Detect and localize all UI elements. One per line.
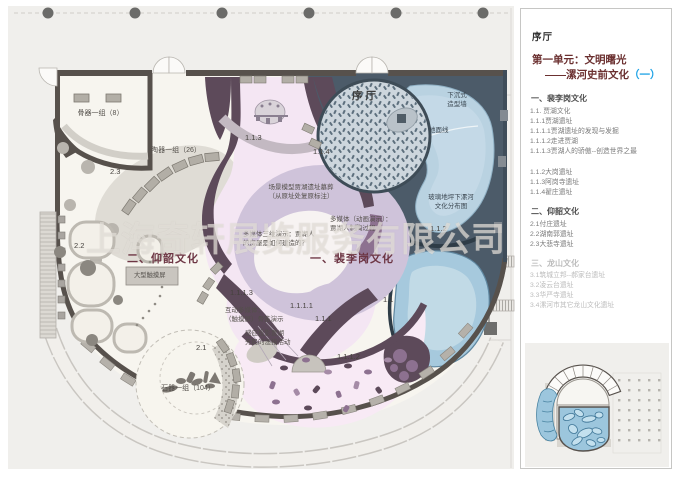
panel-item: 3.2凌云台遗址 (530, 279, 573, 289)
label-media-3d: 多媒体三维演示：贾湖人 的房屋是如何建造的？ (243, 230, 315, 248)
panel-item: 1.1.3阿岗寺遗址 (530, 176, 579, 186)
label-bone-group: 骨器一组（8） (58, 109, 143, 119)
exhibition-plan-page: 骨器一组（8） 陶器一组（26） 2.3 2.2 二、仰韶文化 大型触摸屏 2.… (0, 0, 676, 477)
minimap-thumbnail (525, 343, 669, 467)
panel-unit-title: 第一单元：文明曙光 (532, 52, 627, 67)
label-zone-1-1: 1.1 (383, 295, 393, 306)
label-sensor-projection: 感应投影贾湖 先民的渔猎活动 (245, 329, 291, 347)
panel-item: 3.1筑城立邦--郝家台遗址 (530, 269, 605, 279)
label-zone-1-1-2: 1.1.2 (430, 224, 447, 235)
label-zone-1-1-4: 1.1.4 (313, 147, 330, 158)
panel-unit-subtitle-mark: （一） (629, 69, 661, 81)
label-zone-1-1-1: 1.1.1 (315, 314, 332, 325)
label-ground-line: 地面线 (429, 126, 449, 135)
label-touch-screen: 大型触摸屏 (134, 272, 165, 281)
panel-item: 1.1.1贾湖遗址 (530, 115, 572, 125)
panel-item: 2.2湖南郭遗址 (530, 228, 573, 238)
label-zone-2-1: 2.1 (196, 343, 206, 354)
panel-item: 2.3大悲寺遗址 (530, 238, 573, 248)
label-media-anim: 多媒体（动画演示）： 贾湖人制陶过程 (330, 215, 392, 233)
panel-item: 1.1.1.2走进贾湖 (530, 135, 578, 145)
label-yangshao-title: 二、仰韶文化 (115, 250, 211, 266)
label-zone-2-3: 2.3 (110, 167, 120, 178)
panel-item: 1.1.4翟庄遗址 (530, 186, 572, 196)
label-glass-floor: 玻璃地坪下漯河 文化分布图 (423, 193, 479, 211)
label-pottery-group: 陶器一组（26） (130, 146, 222, 156)
label-peiligang-title: 一、裴李岗文化 (300, 250, 404, 266)
panel-item: 3.4漯河市其它龙山文化遗址 (530, 299, 614, 309)
panel-unit-subtitle-text: ——漯河史前文化 (545, 69, 629, 81)
panel-section-title: 一、裴李岗文化 (531, 93, 587, 104)
label-zone-2-2: 2.2 (74, 241, 84, 252)
label-zone-1-1-1-1: 1.1.1.1 (290, 301, 313, 312)
label-scene-model: 场景模型贾湖遗址墓葬 （从原址处复原标注） (254, 183, 348, 201)
panel-section-title: 二、仰韶文化 (531, 206, 579, 217)
panel-item: 1.1.1.1贾湖遗址的发现与发掘 (530, 125, 619, 135)
panel-lobby-title: 序厅 (532, 29, 553, 43)
panel-item: 1.1.1.3贾湖人的骄傲--创造世界之最 (530, 145, 637, 155)
legend-panel: 序厅 第一单元：文明曙光 ——漯河史前文化（一） 一、裴李岗文化 1.1. 贾湖… (520, 8, 672, 469)
label-plan-lobby: 序厅 (352, 88, 379, 103)
panel-item: 1.1.2大岗遗址 (530, 166, 572, 176)
panel-section-title: 三、龙山文化 (531, 258, 579, 269)
label-zone-1-1-1-2: 1.1.1.2 (337, 352, 360, 363)
label-zone-1-1-1-3: 1.1.1.3 (230, 288, 253, 299)
label-interactive-media: 互动多媒体： （触摸屏）骨笛演示 (225, 306, 284, 324)
panel-unit-subtitle: ——漯河史前文化（一） (545, 67, 661, 82)
panel-item: 2.1付庄遗址 (530, 218, 567, 228)
panel-item: 3.3华严寺遗址 (530, 289, 573, 299)
label-zone-1-1-3: 1.1.3 (245, 133, 262, 144)
panel-item: 1.1. 贾湖文化 (530, 105, 570, 115)
label-stone-group: 石器一组（104） (148, 384, 228, 394)
label-sunken-wall: 下沉式 造型墙 (440, 91, 474, 109)
